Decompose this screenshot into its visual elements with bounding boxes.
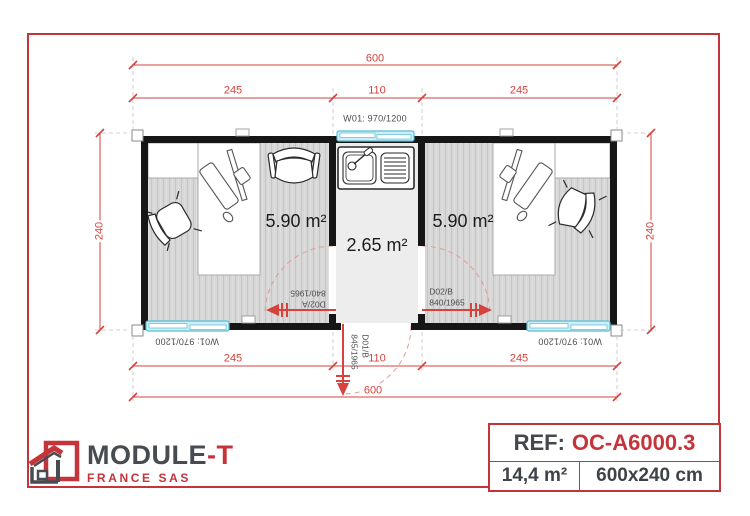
dim-top-left: 245 bbox=[222, 86, 244, 97]
window-bottom-left-label: W01: 970/1200 bbox=[155, 337, 219, 346]
module-t-logo-icon bbox=[28, 440, 80, 488]
dim-bottom-total: 600 bbox=[362, 386, 384, 397]
area-label-right: 5.90 m² bbox=[432, 212, 493, 230]
door-arrow-center bbox=[336, 324, 350, 396]
ref-label: REF: bbox=[514, 430, 565, 456]
window-bottom-right bbox=[527, 321, 610, 331]
door-center-label: D01/B 845/1965 bbox=[349, 334, 370, 369]
window-top bbox=[337, 131, 414, 141]
brand-logo: MODULE-T FRANCE SAS bbox=[28, 440, 233, 488]
dim-top-right: 245 bbox=[508, 86, 530, 97]
door-left-size: 840/1965 bbox=[290, 288, 325, 299]
dim-side-right: 240 bbox=[646, 220, 657, 242]
door-right-size: 840/1965 bbox=[429, 297, 464, 308]
floorplan-sheet: 600 245 110 245 245 110 245 600 240 240 … bbox=[0, 0, 750, 516]
dim-bottom-right: 245 bbox=[508, 354, 530, 365]
dim-top-total: 600 bbox=[364, 54, 386, 65]
door-left-id: D02/A bbox=[290, 299, 325, 310]
dimensions-cell: 600x240 cm bbox=[580, 462, 719, 490]
dim-top-mid: 110 bbox=[366, 86, 388, 97]
window-bottom-left bbox=[146, 321, 229, 331]
door-right-label: D02/B 840/1965 bbox=[429, 286, 464, 307]
window-bottom-right-label: W01: 970/1200 bbox=[538, 337, 602, 346]
brand-subtitle: FRANCE SAS bbox=[87, 471, 233, 485]
brand-name-accent: -T bbox=[207, 440, 233, 470]
door-left-label: D02/A 840/1965 bbox=[290, 288, 325, 309]
kitchen-sink bbox=[338, 147, 414, 189]
area-label-center: 2.65 m² bbox=[346, 236, 407, 254]
dim-bottom-left: 245 bbox=[222, 354, 244, 365]
ref-value: OC-A6000.3 bbox=[572, 430, 696, 456]
brand-name: MODULE-T bbox=[87, 442, 233, 469]
area-label-left: 5.90 m² bbox=[265, 212, 326, 230]
ref-row: REF: OC-A6000.3 bbox=[490, 425, 719, 462]
door-right-id: D02/B bbox=[429, 286, 464, 297]
ref-table: REF: OC-A6000.3 14,4 m² 600x240 cm bbox=[488, 423, 721, 492]
window-top-label: W01: 970/1200 bbox=[343, 115, 407, 124]
total-area-cell: 14,4 m² bbox=[490, 462, 580, 490]
door-center-size: 845/1965 bbox=[349, 334, 360, 369]
dim-side-left: 240 bbox=[95, 220, 106, 242]
brand-name-main: MODULE bbox=[87, 440, 207, 470]
door-center-id: D01/B bbox=[360, 334, 371, 369]
